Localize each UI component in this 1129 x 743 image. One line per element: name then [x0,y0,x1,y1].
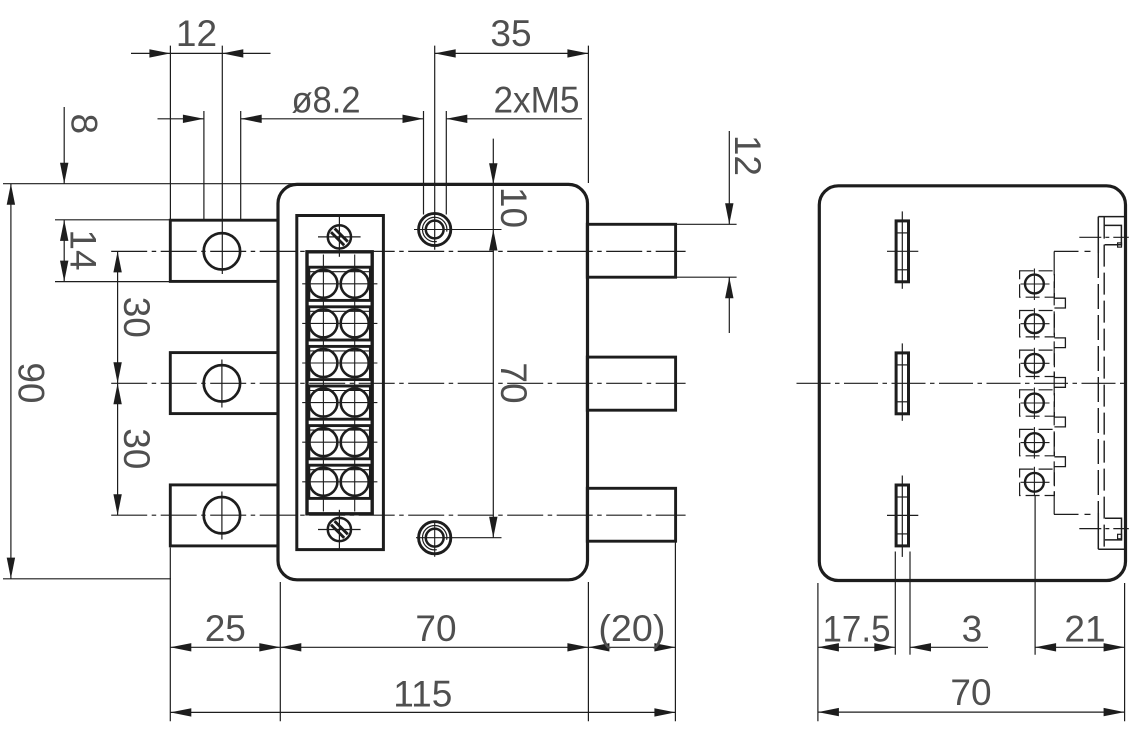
svg-text:(20): (20) [598,608,665,649]
svg-text:ø8.2: ø8.2 [292,80,361,121]
svg-text:21: 21 [1064,609,1105,650]
svg-text:25: 25 [205,608,246,649]
svg-text:70: 70 [950,672,991,713]
svg-text:70: 70 [493,362,534,403]
svg-text:2xM5: 2xM5 [494,80,580,121]
svg-text:35: 35 [490,13,531,54]
svg-text:30: 30 [116,428,157,469]
svg-text:14: 14 [63,229,104,270]
svg-text:12: 12 [727,135,768,176]
svg-text:3: 3 [962,609,983,650]
svg-text:70: 70 [415,608,456,649]
svg-text:10: 10 [493,187,534,228]
svg-text:115: 115 [393,674,452,715]
svg-text:8: 8 [63,114,104,135]
svg-text:30: 30 [116,297,157,338]
svg-text:17.5: 17.5 [823,609,891,650]
svg-text:90: 90 [11,362,52,403]
svg-text:12: 12 [176,13,217,54]
